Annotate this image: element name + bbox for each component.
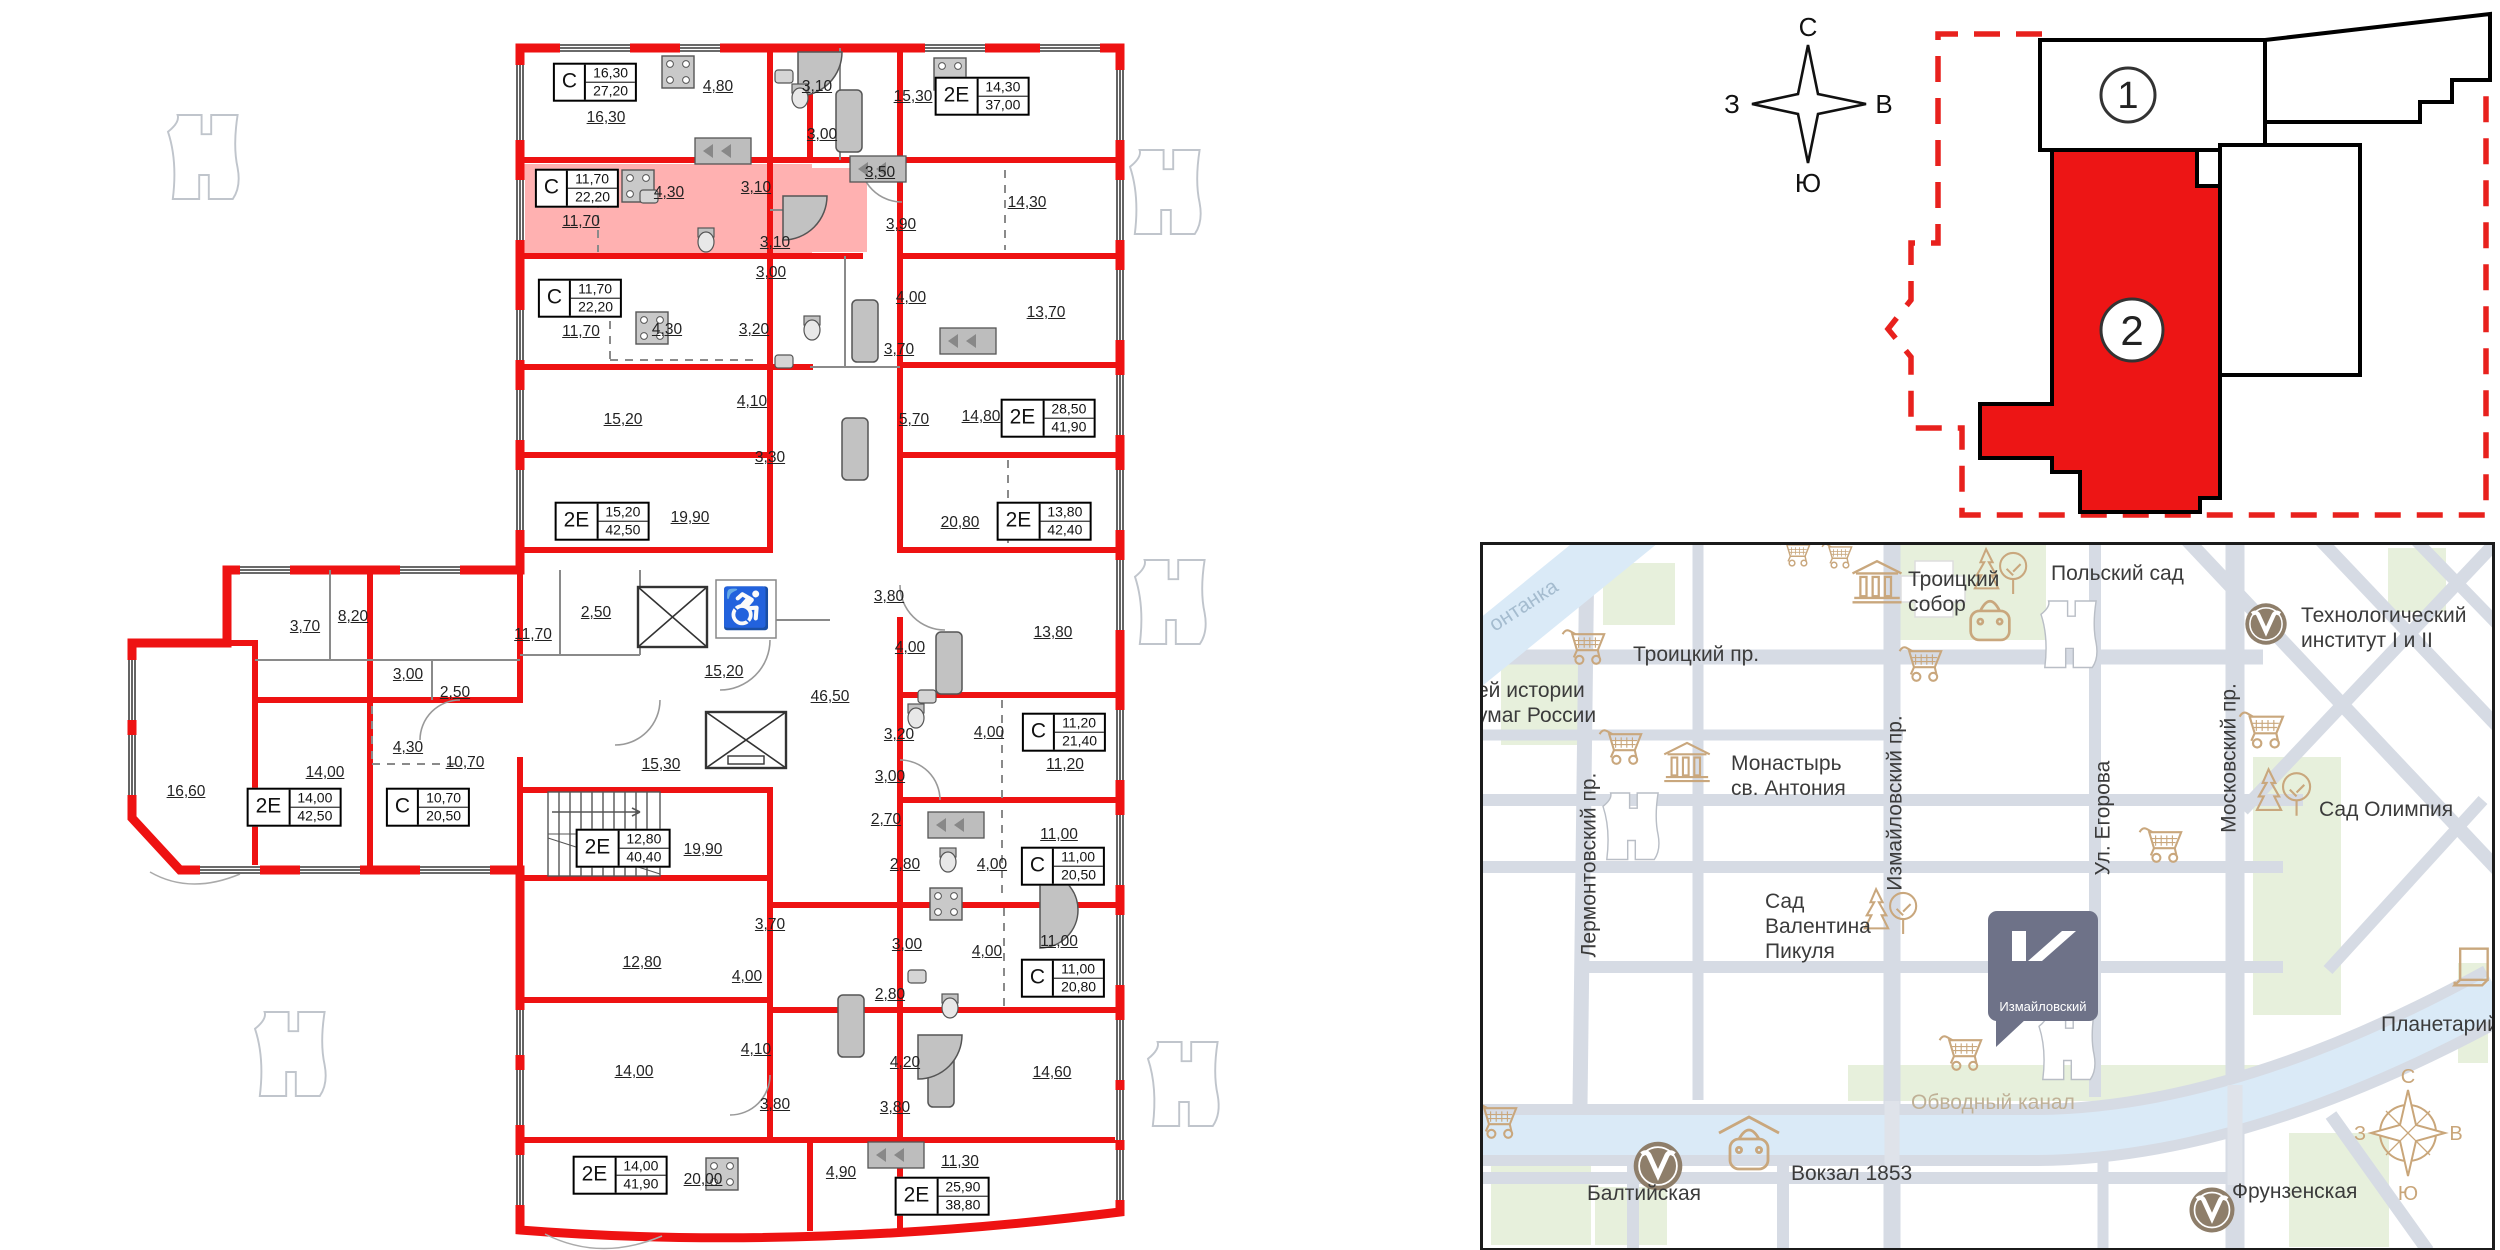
neighbour-building-sketch [168,115,239,199]
neighbour-building-sketch [1130,150,1201,234]
apartment-type: 2Е [1003,401,1045,436]
map-label: Ул. Егорова [2090,761,2115,876]
apartment-type: С [1023,961,1054,996]
room-area-label: 3,10 [760,234,790,252]
window-hatch [420,865,490,875]
map-label: Троицкий собор [1908,567,1999,617]
room-area-label: 11,20 [1046,756,1084,774]
map-label: ей истории умаг России [1480,678,1596,728]
window-hatch [1115,815,1125,885]
room-area-label: 3,80 [880,1099,910,1117]
map-label: Планетарий [2381,1012,2495,1037]
apartment-type: 2Е [557,504,599,539]
map-compass-north: С [2401,1066,2415,1088]
room-area-label: 11,00 [1040,826,1078,844]
project-logo[interactable]: Измайловский [1988,911,2098,1021]
window-hatch [1115,470,1125,530]
stove-burner [627,175,634,182]
room-area-label: 3,10 [741,179,771,197]
compass-east-label: В [1875,89,1892,119]
map-label: Троицкий пр. [1633,642,1759,667]
total-area-value: 40,40 [619,849,668,866]
total-area-value: 42,50 [598,522,647,539]
total-area-value: 42,50 [290,808,339,825]
sink-icon [775,70,793,83]
stove-burner [955,63,962,70]
room-area-label: 3,80 [760,1096,790,1114]
room-area-value: 11,00 [1054,849,1103,867]
apartment-badge[interactable]: С16,3027,20 [553,63,637,102]
room-area-label: 3,20 [884,726,914,744]
room-area-label: 11,70 [514,626,552,644]
map-compass-east: В [2449,1123,2462,1145]
room-area-label: 2,80 [875,986,905,1004]
compass-rose: С Ю З В [1724,12,1893,198]
stove-icon [930,888,962,920]
room-area-label: 3,00 [756,264,786,282]
sink-icon [908,970,926,983]
site-section-2-number: 2 [2120,307,2143,354]
room-area-label: 4,00 [972,943,1002,961]
room-area-value: 11,70 [571,281,620,299]
window-hatch [1115,1150,1125,1200]
apartment-badge[interactable]: С11,2021,40 [1022,713,1106,752]
room-area-label: 3,50 [865,164,895,182]
map-label: Московский пр. [2216,683,2241,833]
wardrobe-icon [868,1142,924,1168]
window-hatch [515,1070,525,1125]
svg-text:♿: ♿ [721,585,771,631]
stove-burner [627,191,634,198]
room-area-label: 2,50 [440,684,470,702]
window-hatch [300,865,360,875]
total-area-value: 42,40 [1040,522,1089,539]
map-label: Польский сад [2051,561,2184,586]
room-area-label: 4,00 [977,856,1007,874]
apartment-badge[interactable]: 2Е14,0041,90 [573,1156,668,1195]
room-area-value: 10,70 [419,790,468,808]
total-area-value: 41,90 [616,1176,665,1193]
map-label: Лермонтовский пр. [1576,773,1601,958]
window-hatch [1115,270,1125,340]
stove-burner [667,77,674,84]
toilet-icon [908,704,924,728]
window-hatch [1115,915,1125,985]
room-area-label: 3,00 [875,768,905,786]
apartment-badge[interactable]: 2Е14,3037,00 [935,77,1030,116]
neighbour-building-sketch [1135,560,1206,644]
apartment-type: С [1023,849,1054,884]
room-area-value: 16,30 [586,65,635,83]
stove-burner [641,333,648,340]
room-area-value: 14,00 [616,1158,665,1176]
room-area-label: 5,70 [899,411,929,429]
stove-body [662,56,694,88]
window-hatch [1115,560,1125,630]
apartment-type: 2Е [578,831,620,866]
room-area-label: 15,30 [642,756,681,774]
total-area-value: 20,50 [1054,867,1103,884]
window-hatch [1115,180,1125,240]
window-hatch [200,865,260,875]
window-hatch [515,65,525,140]
map-label: Вокзал 1853 [1791,1161,1912,1186]
room-area-value: 11,70 [568,171,617,189]
bathtub-icon [936,632,962,694]
window-hatch [515,470,525,530]
wardrobe-icon [940,328,996,354]
room-area-label: 3,00 [393,666,423,684]
stove-burner [643,175,650,182]
total-area-value: 21,40 [1055,733,1104,750]
window-hatch [680,43,720,53]
wardrobe-icon [695,138,751,164]
room-area-label: 4,10 [741,1041,771,1059]
apartment-badge[interactable]: С11,0020,80 [1021,959,1105,998]
room-area-label: 3,70 [884,341,914,359]
room-area-label: 15,20 [705,663,744,681]
room-area-label: 8,20 [338,608,368,626]
compass-north-label: С [1799,12,1818,42]
toilet-icon [940,848,956,872]
sink-icon [775,355,793,368]
apartment-type: 2Е [575,1158,617,1193]
toilet-icon [804,316,820,340]
room-area-value: 13,80 [1040,504,1089,522]
room-area-label: 19,90 [684,841,723,859]
toilet-bowl [940,852,956,872]
map-compass-south: Ю [2398,1183,2418,1205]
apartment-type: С [540,281,571,316]
total-area-value: 22,20 [571,299,620,316]
stove-burner [641,317,648,324]
window-hatch [515,1010,525,1055]
room-area-label: 14,30 [1008,194,1047,212]
window-hatch [1115,375,1125,435]
compass-south-label: Ю [1795,168,1821,198]
room-area-label: 3,00 [892,936,922,954]
room-area-label: 3,30 [755,449,785,467]
room-area-value: 28,50 [1044,401,1093,419]
total-area-value: 41,90 [1044,419,1093,436]
room-area-label: 3,70 [290,618,320,636]
stove-burner [935,893,942,900]
map-label: Обводный канал [1911,1090,2075,1115]
apartment-type: 2Е [999,504,1041,539]
room-area-label: 11,70 [562,323,600,341]
room-area-label: 2,50 [581,604,611,622]
apartment-badge[interactable]: С11,7022,20 [538,279,622,318]
stove-body [930,888,962,920]
room-area-label: 3,00 [807,126,837,144]
stove-burner [951,893,958,900]
apartment-type: С [537,171,568,206]
site-plan: 1 2 [1888,14,2490,515]
room-area-label: 3,10 [802,78,832,96]
window-hatch [400,565,460,575]
total-area-value: 20,50 [419,808,468,825]
room-area-label: 14,60 [1033,1064,1072,1082]
apartment-badge[interactable]: 2Е13,8042,40 [997,502,1092,541]
neighbour-building-sketch [255,1012,326,1096]
sink-icon [918,690,936,703]
stove-burner [935,909,942,916]
stove-burner [683,77,690,84]
apartment-badge[interactable]: 2Е28,5041,90 [1001,399,1096,438]
room-area-label: 13,70 [1027,304,1066,322]
room-area-label: 3,70 [755,916,785,934]
window-hatch [1115,710,1125,780]
apartment-type: 2Е [897,1179,939,1214]
window-hatch [515,180,525,240]
toilet-bowl [908,708,924,728]
apartment-badge[interactable]: 2Е14,0042,50 [247,788,342,827]
apartment-type: 2Е [937,79,979,114]
room-area-label: 16,60 [167,783,206,801]
room-area-value: 12,80 [619,831,668,849]
toilet-bowl [804,320,820,340]
total-area-value: 38,80 [938,1197,987,1214]
window-hatch [515,1155,525,1205]
stove-burner [727,1179,734,1186]
room-area-label: 4,10 [737,393,767,411]
window-hatch [560,43,630,53]
room-area-label: 20,00 [684,1171,723,1189]
room-area-label: 15,30 [894,88,933,106]
stove-icon [662,56,694,88]
total-area-value: 22,20 [568,189,617,206]
location-map: С Ю З В Измайловский онтанкаТроицкий пр.… [1480,542,2495,1250]
map-compass-west: З [2354,1123,2366,1145]
room-area-label: 4,80 [703,78,733,96]
toilet-icon [942,994,958,1018]
wheelchair-icon: ♿ [716,580,776,638]
apartment-type: С [555,65,586,100]
room-area-label: 20,80 [941,514,980,532]
room-area-label: 13,80 [1034,624,1073,642]
map-label: Монастырь св. Антония [1731,751,1846,801]
window-hatch [240,565,290,575]
toilet-icon [698,228,714,252]
room-area-label: 16,30 [587,109,626,127]
apartment-badge[interactable]: С11,0020,50 [1021,847,1105,886]
room-area-value: 15,20 [598,504,647,522]
room-area-label: 46,50 [811,688,850,706]
room-area-label: 15,20 [604,411,643,429]
compass-west-label: З [1724,89,1740,119]
bathtub-icon [852,300,878,362]
room-area-label: 10,70 [446,754,485,772]
map-label: Сад Олимпия [2319,797,2453,822]
room-area-label: 3,80 [874,588,904,606]
window-hatch [1115,70,1125,140]
total-area-value: 20,80 [1054,979,1103,996]
total-area-value: 27,20 [586,83,635,100]
project-logo-label: Измайловский [1988,999,2098,1014]
room-area-value: 25,90 [938,1179,987,1197]
map-label: Фрунзенская [2232,1179,2357,1204]
room-area-label: 12,80 [623,954,662,972]
apartment-badge[interactable]: 2Е15,2042,50 [555,502,650,541]
room-area-label: 14,00 [615,1063,654,1081]
stove-burner [951,909,958,916]
room-area-label: 14,80 [962,408,1001,426]
room-area-label: 4,20 [890,1054,920,1072]
room-area-label: 4,00 [974,724,1004,742]
room-area-label: 4,00 [732,968,762,986]
window-hatch [925,43,985,53]
map-label: Измайловский пр. [1882,715,1907,891]
room-area-label: 4,00 [896,289,926,307]
logo-pointer [1996,1019,2026,1047]
room-area-label: 2,80 [890,856,920,874]
room-area-label: 4,30 [393,739,423,757]
apartment-badge[interactable]: 2Е12,8040,40 [576,829,671,868]
room-area-label: 19,90 [671,509,710,527]
shower-icon [918,1035,962,1079]
map-label: Технологический институт I и II [2301,603,2467,653]
window-hatch [1040,43,1100,53]
room-area-label: 4,90 [826,1164,856,1182]
map-label: Балтийская [1587,1181,1701,1206]
bathtub-icon [842,418,868,480]
bathtub-icon [838,995,864,1057]
stove-burner [667,61,674,68]
window-hatch [127,735,137,795]
stove-burner [683,61,690,68]
room-area-label: 11,00 [1040,933,1078,951]
apartment-type: С [388,790,419,825]
room-area-label: 2,70 [871,811,901,829]
room-area-value: 11,20 [1055,715,1104,733]
map-label: Сад Валентина Пикуля [1765,889,1871,965]
room-area-label: 11,30 [941,1153,979,1171]
stove-burner [727,1163,734,1170]
room-area-label: 11,70 [562,213,600,231]
wardrobe-icon [928,812,984,838]
window-hatch [1115,1020,1125,1080]
stove-burner [939,63,946,70]
window-hatch [1115,1090,1125,1140]
site-section-1-number: 1 [2117,75,2138,117]
room-area-label: 4,00 [895,639,925,657]
room-area-label: 14,00 [306,764,345,782]
apartment-plan-page: ♿ С Ю З В 1 [0,0,2500,1250]
stove-burner [711,1163,718,1170]
room-area-label: 4,30 [654,184,684,202]
apartment-badge[interactable]: 2Е25,9038,80 [895,1177,990,1216]
window-hatch [127,660,137,720]
room-area-label: 4,30 [652,321,682,339]
apartment-badge-selected[interactable]: С11,7022,20 [535,169,619,208]
room-area-label: 3,20 [739,321,769,339]
neighbour-building-sketch [1148,1042,1219,1126]
window-hatch [515,310,525,360]
toilet-bowl [698,232,714,252]
apartment-type: 2Е [249,790,291,825]
toilet-bowl [942,998,958,1018]
apartment-badge[interactable]: С10,7020,50 [386,788,470,827]
room-area-value: 11,00 [1054,961,1103,979]
room-area-value: 14,30 [978,79,1027,97]
apartment-type: С [1024,715,1055,750]
room-area-value: 14,00 [290,790,339,808]
window-hatch [515,390,525,440]
room-area-label: 3,90 [886,216,916,234]
total-area-value: 37,00 [978,97,1027,114]
bathtub-icon [836,90,862,152]
